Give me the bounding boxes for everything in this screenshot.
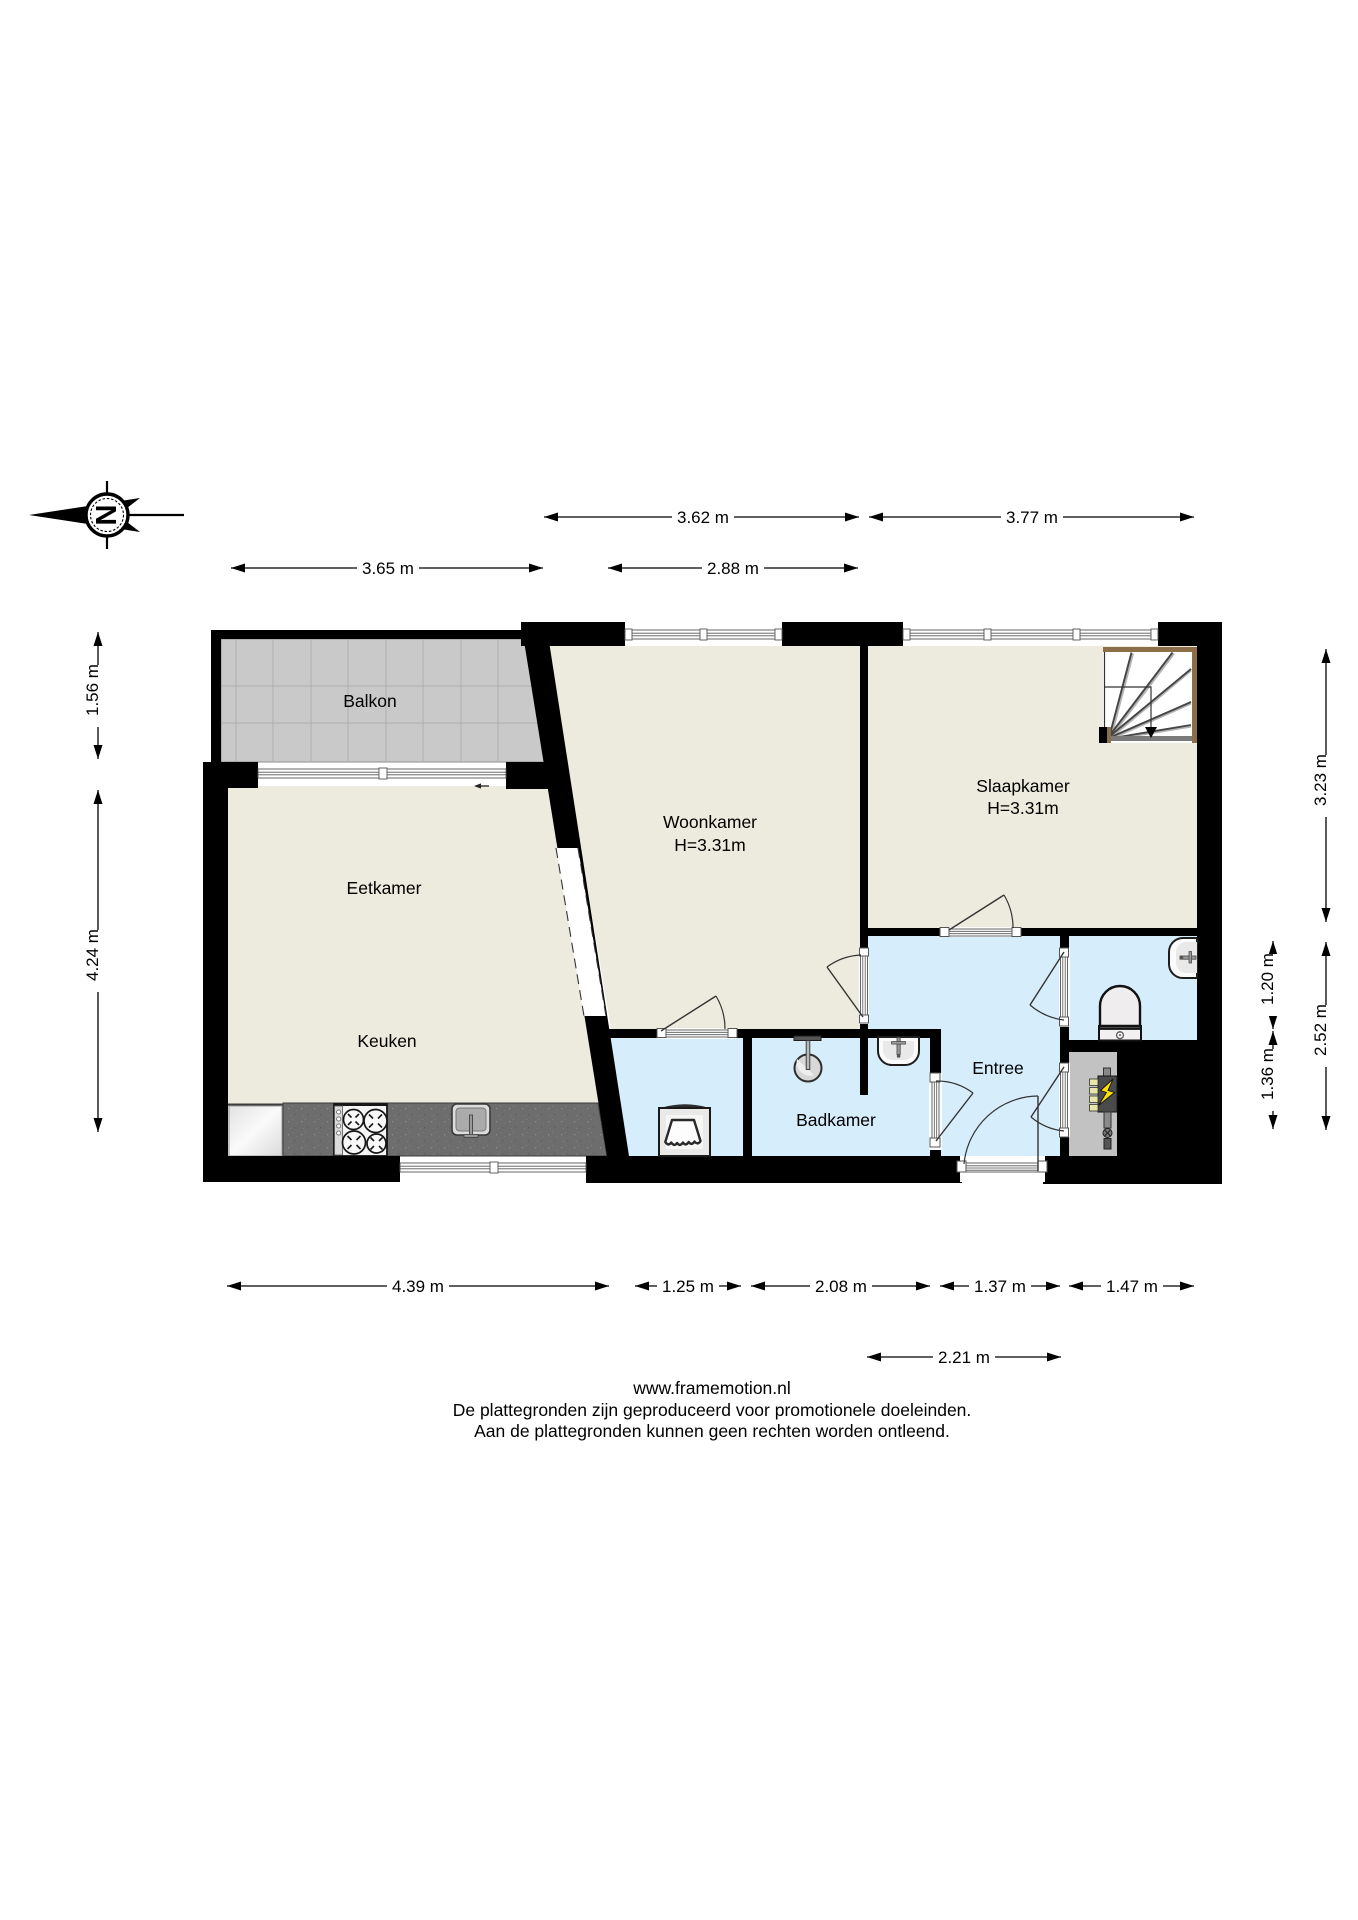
svg-text:Woonkamer: Woonkamer — [663, 812, 757, 832]
svg-text:www.framemotion.nl: www.framemotion.nl — [632, 1378, 791, 1398]
svg-text:1.36 m: 1.36 m — [1258, 1048, 1277, 1100]
svg-text:H=3.31m: H=3.31m — [987, 798, 1059, 818]
svg-text:H=3.31m: H=3.31m — [674, 835, 746, 855]
svg-text:3.65 m: 3.65 m — [362, 559, 414, 578]
svg-text:Eetkamer: Eetkamer — [347, 878, 422, 898]
svg-text:Slaapkamer: Slaapkamer — [976, 776, 1070, 796]
svg-text:2.52 m: 2.52 m — [1311, 1004, 1330, 1056]
svg-text:4.39 m: 4.39 m — [392, 1277, 444, 1296]
svg-text:3.62 m: 3.62 m — [677, 508, 729, 527]
svg-text:1.47 m: 1.47 m — [1106, 1277, 1158, 1296]
svg-text:Entree: Entree — [972, 1058, 1024, 1078]
svg-text:4.24 m: 4.24 m — [83, 929, 102, 981]
svg-text:1.56 m: 1.56 m — [83, 664, 102, 716]
svg-text:1.37 m: 1.37 m — [974, 1277, 1026, 1296]
svg-text:2.08 m: 2.08 m — [815, 1277, 867, 1296]
svg-text:Balkon: Balkon — [343, 691, 397, 711]
svg-text:1.25 m: 1.25 m — [662, 1277, 714, 1296]
svg-text:Aan de plattegronden kunnen ge: Aan de plattegronden kunnen geen rechten… — [474, 1421, 950, 1441]
svg-text:De plattegronden zijn geproduc: De plattegronden zijn geproduceerd voor … — [453, 1400, 972, 1420]
svg-text:Badkamer: Badkamer — [796, 1110, 876, 1130]
svg-text:2.21 m: 2.21 m — [938, 1348, 990, 1367]
svg-text:Keuken: Keuken — [357, 1031, 416, 1051]
svg-text:3.77 m: 3.77 m — [1006, 508, 1058, 527]
svg-text:1.20 m: 1.20 m — [1258, 953, 1277, 1005]
svg-text:N: N — [91, 505, 123, 526]
svg-text:3.23 m: 3.23 m — [1311, 754, 1330, 806]
svg-text:2.88 m: 2.88 m — [707, 559, 759, 578]
